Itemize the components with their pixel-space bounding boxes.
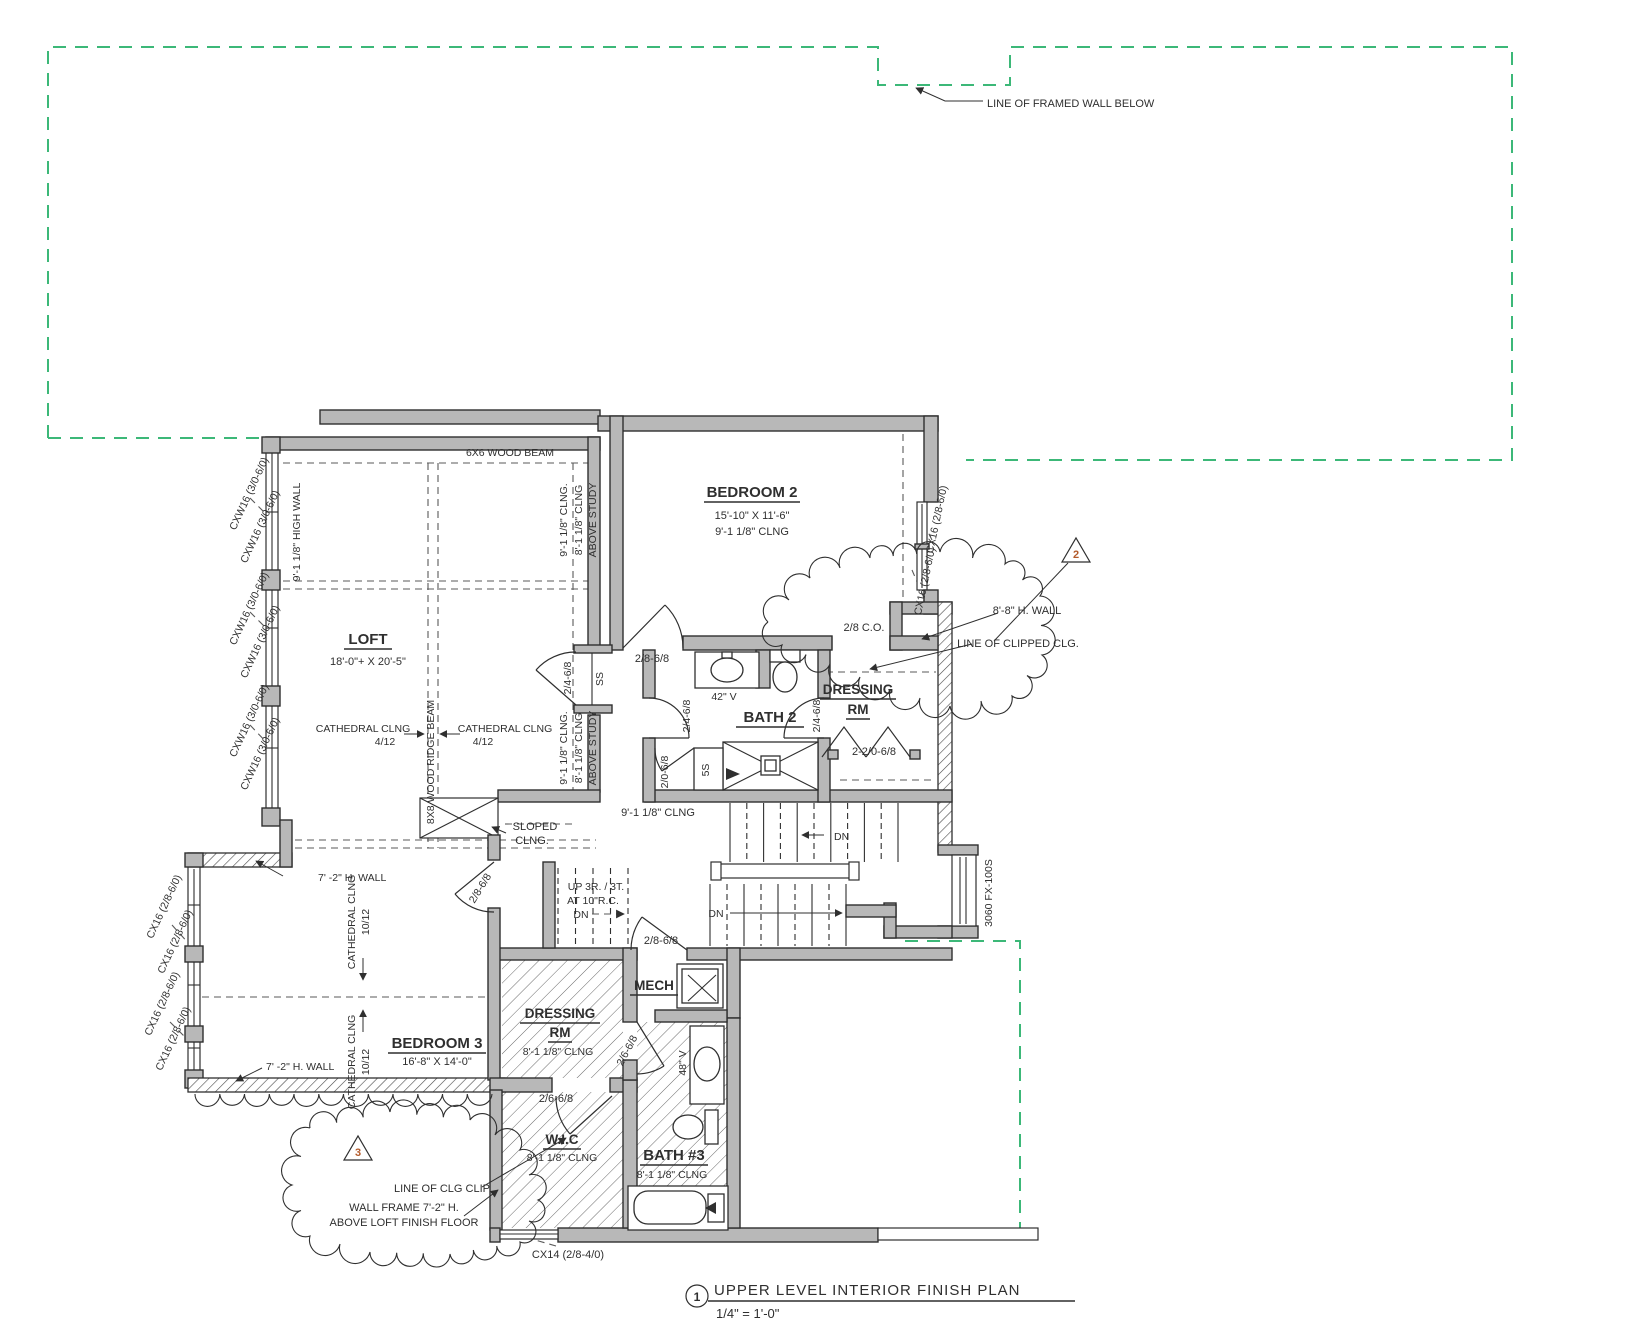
floor-plan-drawing: 2 3 LINE OF FRAMED WALL BELOW 6X6 WOOD B…	[0, 0, 1638, 1342]
note-above-study-b: ABOVE STUDY	[587, 711, 599, 786]
note-pitch-b3-up: 10/12	[360, 909, 372, 935]
note-ridge-beam: 8X8 WOOD RIDGE BEAM	[425, 700, 437, 824]
door-label-5s: 2/0-6/8	[659, 756, 671, 789]
toilet-tank-bath3	[705, 1110, 718, 1144]
note-72-wall-top: 7' -2" H. WALL	[318, 872, 387, 884]
callout-3: 3	[344, 1136, 372, 1160]
sink-bath2	[711, 658, 743, 682]
note-clng811-a: 8'-1 1/8" CLNG	[573, 485, 585, 556]
sheet-scale: 1/4" = 1'-0"	[716, 1306, 780, 1321]
wall-below-extension	[878, 1228, 1038, 1240]
note-wood-beam: 6X6 WOOD BEAM	[466, 447, 554, 459]
note-above-study-a: ABOVE STUDY	[587, 483, 599, 558]
note-pitch-left: 4/12	[375, 736, 396, 748]
stairs	[558, 803, 898, 946]
revision-cloud	[195, 1094, 492, 1106]
room-dressing-top-1: DRESSING	[823, 682, 894, 697]
stair-flight-loft	[558, 868, 628, 946]
revision-cloud	[762, 538, 1055, 719]
note-72-wall-bottom: 7' -2" H. WALL	[266, 1061, 335, 1073]
window-3060	[952, 855, 976, 926]
note-wall-frame-2: ABOVE LOFT FINISH FLOOR	[330, 1217, 479, 1229]
sink-bath3	[694, 1047, 720, 1081]
detail-number: 1	[694, 1290, 701, 1304]
note-cathedral-b3-up: CATHEDRAL CLNG	[346, 875, 358, 970]
room-bedroom2: BEDROOM 2	[707, 484, 798, 501]
window-label-3060: 3060 FX-100S	[983, 859, 995, 927]
note-clg-clip: LINE OF CLG CLIP	[394, 1183, 490, 1195]
note-dn-small: DN	[573, 909, 588, 921]
room-bedroom3: BEDROOM 3	[392, 1035, 483, 1052]
note-clipped-clg: LINE OF CLIPPED CLG.	[957, 638, 1079, 650]
door-label-stair-hall: 2/8-6/8	[644, 935, 678, 947]
note-up-stairs-2: AT 10"R.C.	[567, 895, 619, 907]
note-clng811-b: 8'-1 1/8" CLNG	[573, 713, 585, 784]
callout-2-number: 2	[1073, 549, 1079, 561]
room-loft: LOFT	[348, 631, 387, 648]
toilet-bath3	[673, 1115, 703, 1139]
room-wic-clng: 8'-1 1/8" CLNG	[527, 1152, 598, 1164]
room-mech: MECH	[634, 978, 674, 993]
stair-flight-lower	[710, 884, 846, 946]
note-clng911-b: 9'-1 1/8" CLNG.	[558, 711, 570, 784]
room-bedroom2-dims: 15'-10" X 11'-6"	[715, 510, 790, 522]
toilet-bath2	[773, 662, 797, 692]
room-wic: W.I.C	[546, 1132, 579, 1147]
note-cathedral-right: CATHEDRAL CLNG	[458, 723, 553, 735]
note-high-wall: 9'-1 1/8" HIGH WALL	[291, 482, 303, 581]
door-label-bifold: 2-2/0-6/8	[852, 746, 896, 758]
note-clng911-a: 9'-1 1/8" CLNG.	[558, 483, 570, 556]
room-dressing-bottom-clng: 8'-1 1/8" CLNG	[523, 1046, 594, 1058]
door-label-ss: 2/4-6/8	[562, 662, 574, 695]
note-cathedral-b3-dn: CATHEDRAL CLNG	[346, 1015, 358, 1110]
room-dressing-bottom-1: DRESSING	[525, 1006, 596, 1021]
door-label-bath2-left: 2/4-6/8	[681, 700, 693, 733]
note-clng911-hall: 9'-1 1/8" CLNG	[621, 807, 695, 819]
door-label-wic: 2/6-6/8	[539, 1093, 573, 1105]
title-block: 1 UPPER LEVEL INTERIOR FINISH PLAN 1/4" …	[686, 1282, 1075, 1321]
note-dn-upper: DN	[834, 831, 849, 843]
shelf-label-5s: 5S	[700, 764, 712, 777]
opening-label-28co: 2/8 C.O.	[844, 622, 885, 634]
room-bedroom2-clng: 9'-1 1/8" CLNG	[715, 526, 789, 538]
note-dn-lower: DN	[708, 908, 723, 920]
room-dressing-bottom-2: RM	[550, 1025, 571, 1040]
note-wall-frame-1: WALL FRAME 7'-2" H.	[349, 1202, 459, 1214]
clipped-ceiling-wall	[938, 602, 952, 852]
note-sloped-2: CLNG.	[515, 835, 549, 847]
callout-3-number: 3	[355, 1147, 361, 1159]
note-cathedral-left: CATHEDRAL CLNG	[316, 723, 411, 735]
sheet-title: UPPER LEVEL INTERIOR FINISH PLAN	[714, 1282, 1021, 1299]
room-bath3: BATH #3	[643, 1147, 704, 1164]
floor-plan-sheet: 2 3 LINE OF FRAMED WALL BELOW 6X6 WOOD B…	[0, 0, 1638, 1342]
stair-flight-upper	[730, 803, 898, 862]
window-label-cx14: CX14 (2/8-4/0)	[532, 1249, 604, 1261]
note-pitch-right: 4/12	[473, 736, 494, 748]
door-label-bath2-right: 2/4-6/8	[811, 700, 823, 733]
fixture-label-48v: 48" V	[677, 1050, 689, 1075]
shelf-label-ss: SS	[594, 672, 606, 686]
room-dressing-top-2: RM	[848, 702, 869, 717]
note-sloped-1: SLOPED	[513, 821, 558, 833]
toilet-tank-bath2	[770, 650, 800, 662]
fixture-label-42v: 42" V	[711, 691, 736, 703]
stair-railing	[717, 864, 851, 878]
door-bedroom2	[623, 605, 683, 648]
room-bath2: BATH 2	[743, 709, 796, 726]
door-label-bedroom3: 2/8-6/8	[467, 871, 495, 905]
room-loft-dims: 18'-0"+ X 20'-5"	[330, 656, 406, 668]
note-up-stairs-1: UP 3R. / 3T.	[568, 881, 624, 893]
room-bedroom3-dims: 16'-8" X 14'-0"	[402, 1056, 472, 1068]
note-pitch-b3-dn: 10/12	[360, 1049, 372, 1075]
room-bath3-clng: 8'-1 1/8" CLNG	[637, 1169, 708, 1181]
note-88-wall: 8'-8" H. WALL	[993, 605, 1062, 617]
door-label-bedroom2: 2/8-6/8	[635, 653, 669, 665]
note-framed-wall: LINE OF FRAMED WALL BELOW	[987, 98, 1155, 110]
